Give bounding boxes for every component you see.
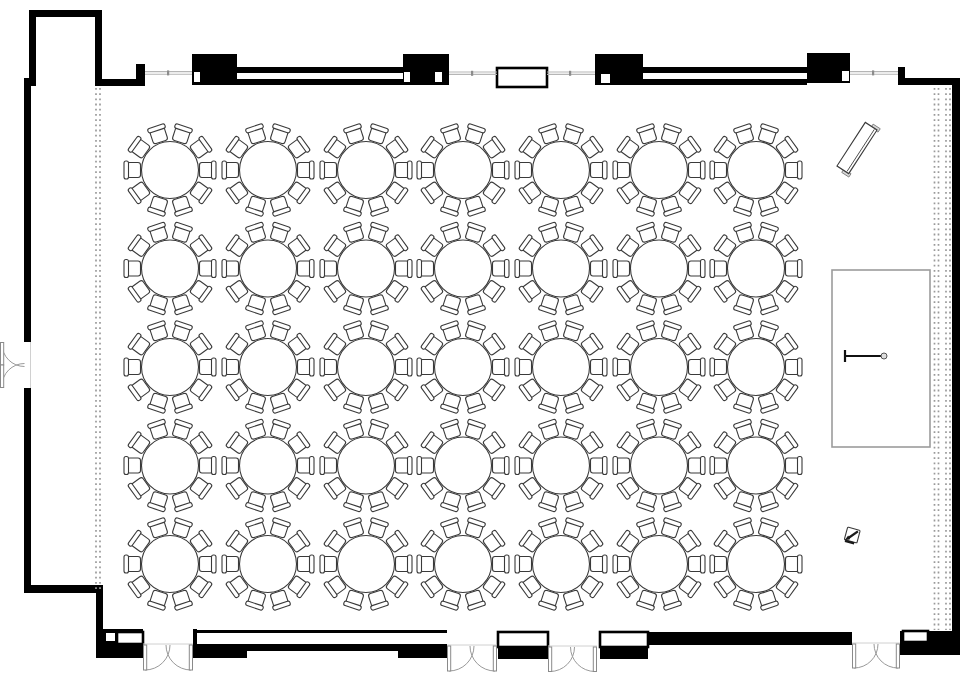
chair: [710, 358, 727, 376]
table-top: [435, 536, 492, 593]
table-top: [142, 536, 199, 593]
table-top: [338, 240, 395, 297]
chair: [515, 555, 532, 573]
operable-wall-band: [643, 79, 807, 85]
chair: [320, 358, 337, 376]
floor-plan-canvas: [0, 0, 960, 690]
chair: [200, 161, 217, 179]
banquet-table: [320, 419, 412, 512]
table-top: [240, 536, 297, 593]
pier-notch: [435, 72, 442, 82]
chair: [591, 260, 608, 278]
chair: [320, 161, 337, 179]
chair: [200, 457, 217, 475]
banquet-table: [710, 123, 802, 216]
stage-platform: [832, 270, 930, 447]
chair: [710, 457, 727, 475]
chair: [613, 555, 630, 573]
banquet-table: [320, 517, 412, 610]
wall-recess-box: [498, 632, 548, 647]
rectangular-table: [835, 120, 880, 177]
stage-area: [832, 270, 930, 447]
table-top: [338, 339, 395, 396]
top-wall-right: [905, 78, 960, 85]
door-swing-arc: [2, 364, 25, 387]
chair: [320, 260, 337, 278]
right-corner-stub: [898, 67, 905, 85]
banquet-table: [613, 123, 705, 216]
chair: [710, 555, 727, 573]
table-top: [728, 339, 785, 396]
bottom-right-corner: [900, 642, 960, 655]
banquet-table: [417, 222, 509, 315]
wall-recess-box: [117, 632, 143, 644]
chair: [298, 555, 315, 573]
chair: [396, 457, 413, 475]
table-top: [728, 437, 785, 494]
door-leaf: [493, 646, 496, 671]
banquet-table: [515, 517, 607, 610]
banquet-table: [417, 123, 509, 216]
wall-niche: [106, 633, 115, 641]
alcove-top-wall: [29, 10, 102, 17]
table-top: [631, 339, 688, 396]
top-wall-left: [95, 79, 139, 86]
banquet-table: [222, 419, 314, 512]
table-top: [142, 240, 199, 297]
chair: [396, 358, 413, 376]
banquet-table: [417, 517, 509, 610]
chair: [200, 555, 217, 573]
table-top: [533, 437, 590, 494]
banquet-table: [222, 222, 314, 315]
banquet-table: [124, 517, 216, 610]
bottom-wall-band: [196, 644, 247, 658]
banquet-table: [710, 320, 802, 413]
door-leaf: [189, 645, 192, 670]
alcove-left-wall: [29, 10, 36, 83]
chair: [515, 260, 532, 278]
chair: [689, 358, 706, 376]
table-top: [631, 240, 688, 297]
bottom-wall-band: [498, 647, 548, 659]
chair: [417, 457, 434, 475]
chair: [493, 260, 510, 278]
table-top: [240, 339, 297, 396]
chair: [298, 260, 315, 278]
table-top: [435, 142, 492, 199]
chair: [689, 260, 706, 278]
chair: [710, 260, 727, 278]
chair: [222, 358, 239, 376]
table-top: [142, 339, 199, 396]
table-top: [240, 437, 297, 494]
banquet-table: [124, 123, 216, 216]
double-door: [447, 645, 497, 671]
chair: [591, 457, 608, 475]
chair: [613, 161, 630, 179]
chair: [786, 161, 803, 179]
banquet-table: [320, 320, 412, 413]
chair: [613, 457, 630, 475]
table-top: [533, 142, 590, 199]
left-jog-bottom: [24, 585, 103, 593]
table-top: [435, 240, 492, 297]
door-jamb: [848, 632, 852, 645]
banquet-table: [710, 222, 802, 315]
table-top: [338, 142, 395, 199]
table-top: [533, 339, 590, 396]
banquet-table: [613, 320, 705, 413]
bottom-wall-right: [928, 631, 952, 643]
table-top: [631, 142, 688, 199]
bottom-wall-thin-line: [196, 630, 447, 633]
double-door: [548, 646, 597, 672]
banquet-table: [222, 320, 314, 413]
chair: [493, 457, 510, 475]
table-top: [142, 142, 199, 199]
chair: [515, 358, 532, 376]
chair: [591, 555, 608, 573]
chair: [222, 457, 239, 475]
chair: [515, 457, 532, 475]
left-bottom-stub: [96, 593, 103, 633]
chair: [710, 161, 727, 179]
door-leaf: [593, 647, 596, 672]
table-top: [338, 437, 395, 494]
chair: [298, 457, 315, 475]
chair: [222, 555, 239, 573]
pier-notch: [194, 72, 200, 82]
banquet-table: [515, 123, 607, 216]
banquet-table: [710, 517, 802, 610]
chair: [124, 161, 141, 179]
table-top: [728, 536, 785, 593]
chair: [124, 358, 141, 376]
table-top: [533, 536, 590, 593]
banquet-table: [124, 222, 216, 315]
chair: [124, 555, 141, 573]
banquet-table: [417, 320, 509, 413]
chair: [298, 358, 315, 376]
operable-wall-band: [643, 67, 807, 73]
table-top: [240, 240, 297, 297]
banquet-table: [417, 419, 509, 512]
chair: [591, 358, 608, 376]
chair: [200, 358, 217, 376]
door-leaf: [448, 646, 451, 671]
banquet-table: [613, 517, 705, 610]
chair: [396, 260, 413, 278]
table-top: [631, 536, 688, 593]
pier-notch: [601, 74, 610, 83]
chair: [124, 260, 141, 278]
banquet-table: [515, 320, 607, 413]
chair: [689, 555, 706, 573]
door-leaf: [1, 343, 4, 366]
chair: [786, 260, 803, 278]
double-door: [1, 342, 31, 388]
wall-recess-box: [497, 68, 547, 87]
right-wall: [952, 83, 960, 655]
chair: [222, 161, 239, 179]
microphone-head-icon: [881, 353, 887, 359]
chair: [493, 555, 510, 573]
left-wall-lower: [24, 388, 31, 593]
av-projector-icon: [844, 527, 860, 544]
pier-notch: [842, 71, 849, 81]
table-top: [435, 437, 492, 494]
chair: [396, 555, 413, 573]
pier-notch: [404, 72, 410, 82]
table-top: [435, 339, 492, 396]
chair: [591, 161, 608, 179]
banquet-table: [613, 419, 705, 512]
top-wall-stub: [136, 64, 145, 86]
chair: [320, 555, 337, 573]
banquet-table: [515, 419, 607, 512]
chair: [417, 161, 434, 179]
table-top: [533, 240, 590, 297]
banquet-table: [710, 419, 802, 512]
chair: [613, 358, 630, 376]
chair: [689, 457, 706, 475]
chair: [200, 260, 217, 278]
door-leaf: [144, 645, 147, 670]
chair: [417, 555, 434, 573]
table-top: [631, 437, 688, 494]
bottom-wall-band: [398, 644, 447, 658]
table-top: [240, 142, 297, 199]
banquet-tables: [124, 123, 802, 610]
banquet-table: [320, 123, 412, 216]
table-top: [728, 142, 785, 199]
bottom-wall-band: [247, 644, 398, 651]
banquet-table: [515, 222, 607, 315]
double-door: [143, 644, 193, 670]
chair: [396, 161, 413, 179]
door-swing-arc: [2, 344, 25, 367]
chair: [493, 358, 510, 376]
table-top: [338, 536, 395, 593]
chair: [320, 457, 337, 475]
floor-plan: [0, 0, 960, 690]
door-leaf: [1, 365, 4, 388]
banquet-table: [320, 222, 412, 315]
door-leaf: [549, 647, 552, 672]
bottom-wall-band: [600, 647, 648, 659]
chair: [515, 161, 532, 179]
chair: [493, 161, 510, 179]
table-top: [728, 240, 785, 297]
chair: [417, 358, 434, 376]
door-leaf: [896, 644, 899, 668]
banquet-table: [124, 419, 216, 512]
double-door: [852, 643, 900, 668]
banquet-table: [124, 320, 216, 413]
chair: [298, 161, 315, 179]
chair: [689, 161, 706, 179]
door-leaf: [853, 644, 856, 668]
left-wall-upper: [24, 79, 31, 342]
bottom-wall-band: [648, 632, 850, 645]
chair: [786, 457, 803, 475]
wall-recess-box: [903, 631, 928, 642]
alcove-right-wall: [95, 14, 102, 86]
wall-recess-box: [600, 632, 648, 647]
operable-wall-band: [237, 79, 403, 85]
chair: [222, 260, 239, 278]
chair: [613, 260, 630, 278]
chair: [417, 260, 434, 278]
banquet-table: [222, 517, 314, 610]
operable-wall-band: [237, 67, 403, 73]
banquet-table: [222, 123, 314, 216]
banquet-table: [613, 222, 705, 315]
table-top: [142, 437, 199, 494]
chair: [124, 457, 141, 475]
chair: [786, 555, 803, 573]
chair: [786, 358, 803, 376]
